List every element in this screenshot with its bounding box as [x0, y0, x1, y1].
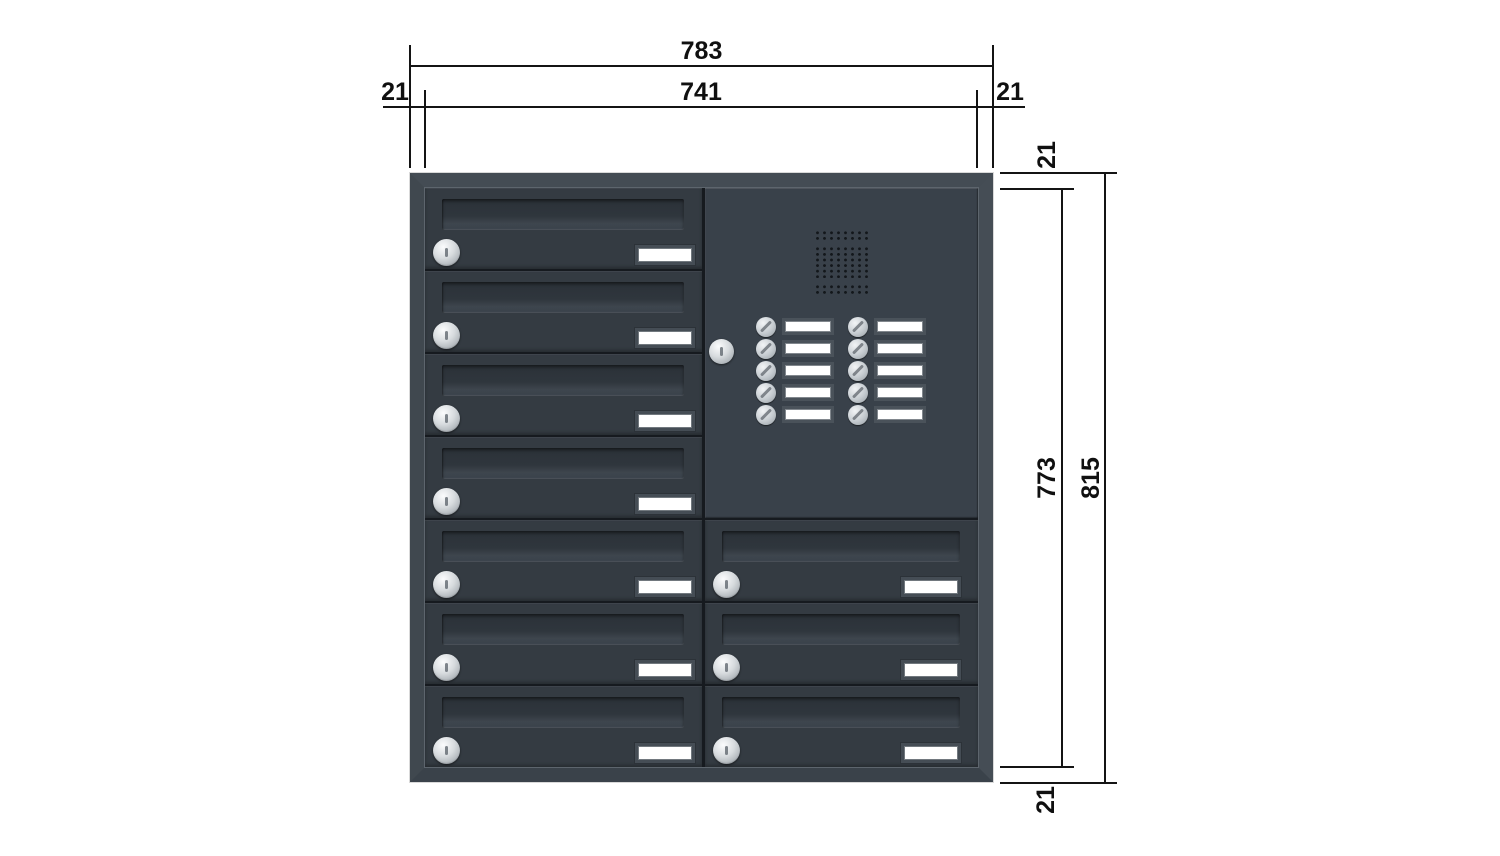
bell-name-plate: [877, 387, 923, 398]
dim-line-773: [1061, 188, 1063, 768]
mail-slot-flap: [442, 199, 684, 230]
mailbox-door: [705, 686, 978, 767]
name-plate: [638, 414, 692, 428]
mailbox-column-left: [425, 188, 702, 767]
mail-slot-flap: [722, 614, 960, 645]
bell-unit: [756, 404, 831, 425]
name-plate: [904, 580, 958, 594]
mailbox-door: [705, 520, 978, 601]
bell-unit: [848, 360, 923, 381]
bell-name-plate: [877, 365, 923, 376]
mailbox-door: [425, 271, 702, 352]
mail-slot-flap: [442, 531, 684, 562]
bell-button-icon: [756, 405, 776, 425]
bell-name-plate: [785, 343, 831, 354]
bell-unit: [756, 338, 831, 359]
diagram-canvas: 783 741 21 21 21 773 815 21: [0, 0, 1500, 856]
bell-name-plate: [785, 321, 831, 332]
door-lock-icon: [433, 571, 460, 598]
bell-button-icon: [848, 361, 868, 381]
bell-unit: [756, 316, 831, 337]
intercom-panel: [705, 188, 978, 518]
name-plate: [638, 746, 692, 760]
mailbox-door: [425, 354, 702, 435]
speaker-dot-band: [812, 229, 868, 240]
bell-name-plate: [877, 409, 923, 420]
door-lock-icon: [433, 488, 460, 515]
door-lock-icon: [433, 239, 460, 266]
bell-button-icon: [756, 383, 776, 403]
bell-button-grid: [756, 316, 923, 425]
mailbox-door: [705, 603, 978, 684]
bell-button-icon: [848, 317, 868, 337]
bell-button-icon: [848, 383, 868, 403]
mailbox-door: [425, 686, 702, 767]
bell-unit: [848, 316, 923, 337]
mail-slot-flap: [442, 365, 684, 396]
dim-label-21-top-left: 21: [370, 79, 420, 105]
mail-slot-flap: [442, 614, 684, 645]
door-lock-icon: [433, 405, 460, 432]
bell-button-icon: [848, 405, 868, 425]
bell-name-plate: [785, 387, 831, 398]
mail-slot-flap: [722, 531, 960, 562]
mailbox-column-right: [705, 188, 978, 767]
bell-unit: [848, 338, 923, 359]
bell-unit: [848, 382, 923, 403]
speaker-dot-band: [812, 245, 868, 278]
bell-button-icon: [848, 339, 868, 359]
name-plate: [638, 331, 692, 345]
door-lock-icon: [713, 571, 740, 598]
dim-label-773: 773: [1034, 448, 1060, 508]
name-plate: [638, 580, 692, 594]
bell-name-plate: [785, 409, 831, 420]
dim-label-21-right-bottom: 21: [1033, 777, 1059, 823]
mail-slot-flap: [442, 282, 684, 313]
dim-label-21-right-top: 21: [1034, 132, 1060, 178]
name-plate: [904, 746, 958, 760]
bell-button-icon: [756, 361, 776, 381]
door-lock-icon: [433, 737, 460, 764]
bell-button-icon: [756, 317, 776, 337]
bell-button-icon: [756, 339, 776, 359]
name-plate: [638, 248, 692, 262]
name-plate: [904, 663, 958, 677]
speaker-dot-band: [812, 283, 868, 294]
bell-unit: [848, 404, 923, 425]
dim-line-741: [383, 106, 1025, 108]
panel-lock-icon: [709, 339, 734, 364]
door-lock-icon: [713, 737, 740, 764]
bell-name-plate: [877, 321, 923, 332]
cabinet-inner: [425, 188, 978, 767]
mail-slot-flap: [442, 448, 684, 479]
mailbox-door: [425, 188, 702, 269]
bell-name-plate: [785, 365, 831, 376]
name-plate: [638, 497, 692, 511]
dim-label-815: 815: [1078, 448, 1104, 508]
letterbox-cabinet: [410, 173, 993, 782]
dim-label-21-top-right: 21: [985, 79, 1035, 105]
dim-line-783: [409, 65, 994, 67]
bell-unit: [756, 382, 831, 403]
door-lock-icon: [713, 654, 740, 681]
door-lock-icon: [433, 654, 460, 681]
mailbox-door: [425, 603, 702, 684]
mail-slot-flap: [722, 697, 960, 728]
dim-label-783: 783: [409, 38, 994, 64]
dim-label-741: 741: [424, 79, 978, 105]
bell-unit: [756, 360, 831, 381]
door-lock-icon: [433, 322, 460, 349]
mail-slot-flap: [442, 697, 684, 728]
mailbox-door: [425, 437, 702, 518]
bell-name-plate: [877, 343, 923, 354]
speaker-grille-icon: [812, 229, 868, 294]
mailbox-door: [425, 520, 702, 601]
name-plate: [638, 663, 692, 677]
